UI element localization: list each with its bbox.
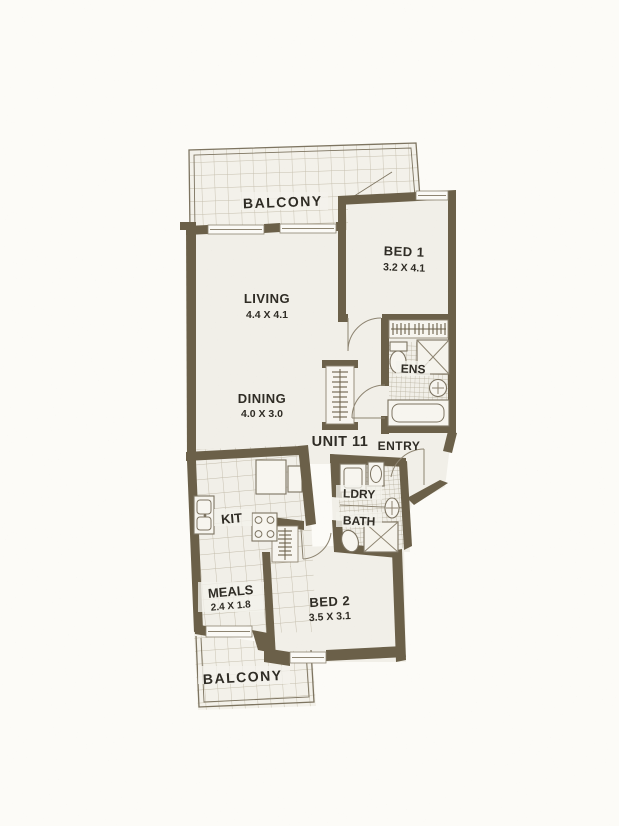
floor-plan: BALCONY LIVING 4.4 X 4.1 BED 1 3.2 X 4.1…	[0, 0, 619, 826]
floor-plan-page: BALCONY LIVING 4.4 X 4.1 BED 1 3.2 X 4.1…	[0, 0, 619, 826]
scan-noise-overlay	[0, 0, 619, 826]
